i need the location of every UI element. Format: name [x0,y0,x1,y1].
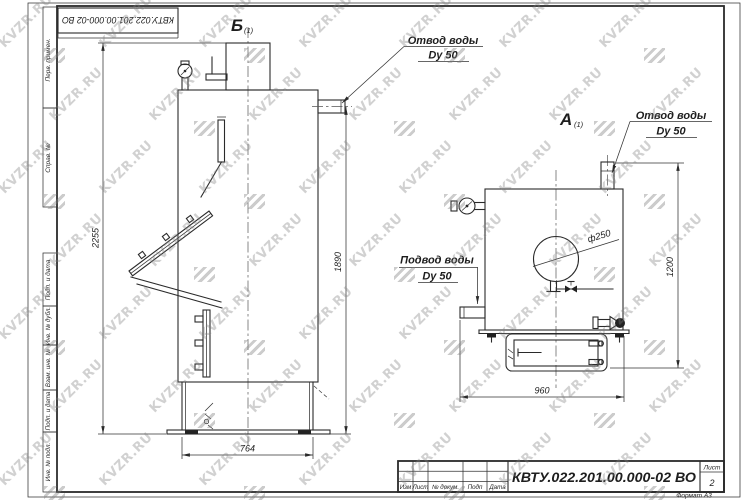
tb-format-label: Формат А3 [676,493,712,500]
margin-label: Взам. инв. № [45,349,52,388]
tb-col-data: Дата [488,484,506,491]
callout-text: Отвод воды [408,35,479,47]
margin-label: Справ. № [45,143,52,173]
sheet-frame [28,3,740,497]
callout-text: Подвод воды [400,255,474,267]
dim-1200-label: 1200 [665,257,675,277]
tb-sheet-label: Лист [703,465,721,472]
lower-door [195,310,210,377]
tb-doc-number: КВТУ.022.201.00.000-02 ВО [512,469,696,485]
tb-col-dokum: № докум. [432,484,459,491]
view-b-label: Б [231,16,243,35]
outlet-pipe-front [601,155,614,196]
view-a-label-index: (1) [574,120,584,129]
tb-col-list: Лист [412,484,429,491]
view-b-side-view: 2255 1890 764 Отвод воды Dy 50 Б (1) [91,16,484,459]
callout-outlet-a: Отвод воды Dy 50 [612,110,712,173]
drawing-sheet: Перв. примен. Справ. № Подп. и дата Инв.… [0,0,750,500]
dim-764: 764 [182,437,313,459]
draft-lever [206,57,227,80]
tb-col-podp: Подп [468,484,483,491]
pressure-gauge [178,61,192,90]
margin-label: Инв. № дубл. [45,307,52,345]
top-stamp: КВТУ.022.201.00.000-02 ВО [58,8,178,38]
dim-764-label: 764 [240,444,255,454]
callout-text: Dy 50 [656,126,686,138]
dim-1890-label: 1890 [333,252,343,272]
callout-inlet-a: Подвод воды Dy 50 [399,255,478,305]
dim-2255: 2255 [91,43,227,434]
margin-label: Перв. примен. [45,38,52,81]
margin-label: Подп. и дата [45,391,52,430]
pressure-gauge-front [451,198,485,214]
base-side [167,382,330,434]
dim-diameter: ф250 [533,228,619,267]
loading-door-open [129,211,222,308]
upper-door [201,117,226,197]
view-b-label-index: (1) [244,26,254,35]
callout-text: Отвод воды [636,110,707,122]
tb-col-izm: Изм [400,484,412,491]
margin-label: Инв. № подл. [45,443,52,481]
tb-sheet-number: 2 [708,478,714,488]
technical-drawing: Перв. примен. Справ. № Подп. и дата Инв.… [0,0,750,500]
dim-1890: 1890 [330,107,351,434]
inlet-pipe [460,307,485,318]
bottom-valve [593,317,625,330]
view-a-front-view: ф250 [399,110,712,402]
dim-960-label: 960 [534,386,549,396]
dim-2255-label: 2255 [91,227,101,249]
callout-text: Dy 50 [428,50,458,62]
boiler-body-front [485,189,623,330]
margin-column: Перв. примен. Справ. № Подп. и дата Инв.… [43,7,57,492]
callout-outlet-b: Отвод воды Dy 50 [342,35,483,103]
top-stamp-doc-number: КВТУ.022.201.00.000-02 ВО [61,14,174,25]
view-a-label: А [559,110,572,129]
title-block: Изм Лист № докум. Подп Дата КВТУ.022.201… [398,461,724,500]
callout-text: Dy 50 [422,271,452,283]
margin-label: Подп. и дата [44,259,52,300]
ash-door [506,334,607,371]
drain-tap [547,281,613,293]
